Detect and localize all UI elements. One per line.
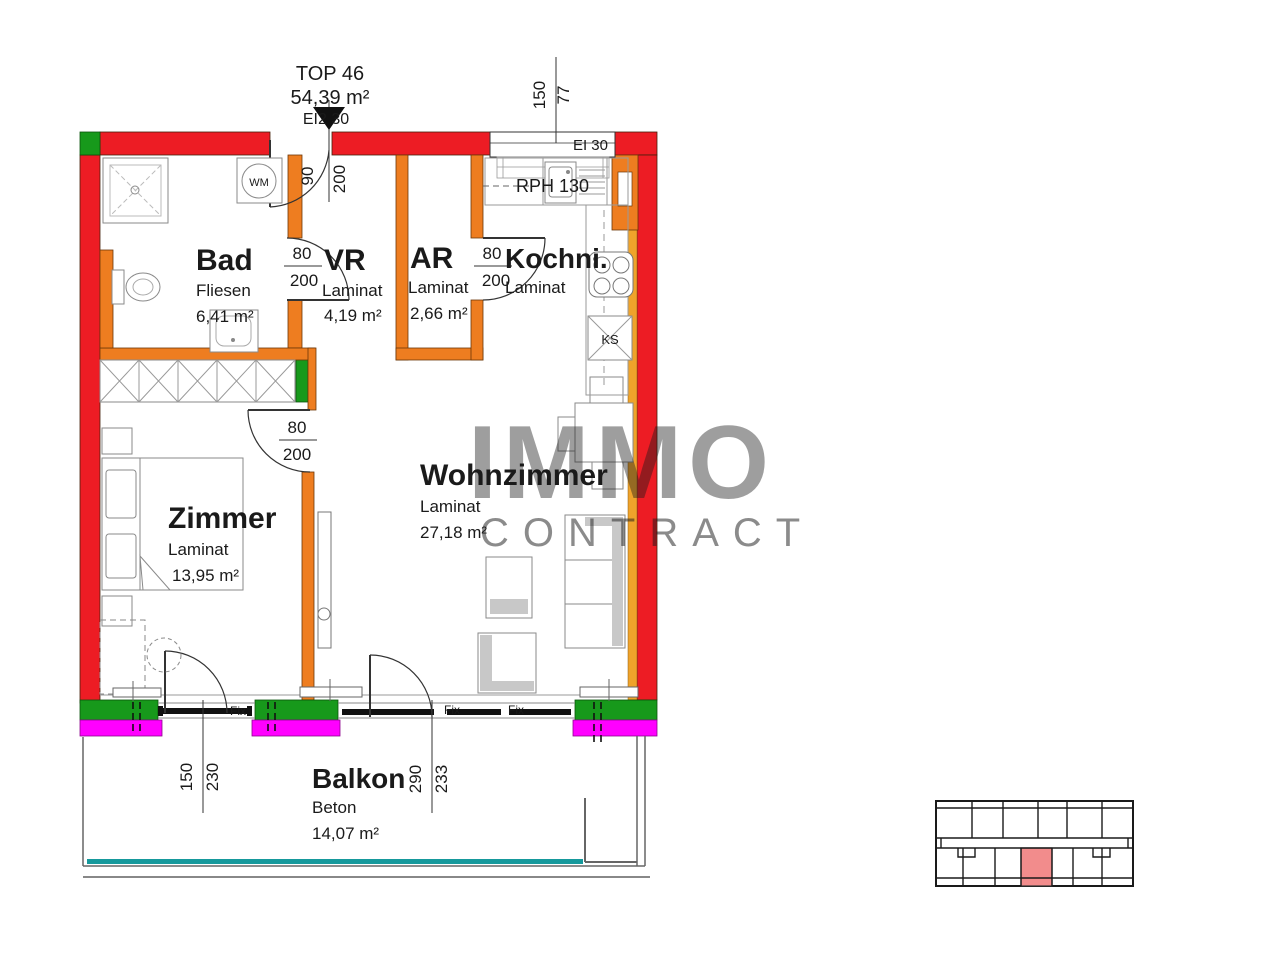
facade-pier-1 [80,700,158,720]
zimmer-door-width: 80 [288,418,307,437]
title-block: TOP 46 54,39 m² EI2 30 [291,63,370,128]
room-name: Bad [196,244,253,277]
room-floor: Laminat [408,278,469,297]
watermark-line1: IMMO [468,405,775,521]
wall-top-1 [100,132,270,155]
room-label-balkon: Balkon Beton 14,07 m² [312,763,405,843]
washing-machine-label: WM [249,177,269,189]
wardrobe-icon [100,360,295,402]
fix-label-1: Fix [230,704,246,718]
room-label-zimmer: Zimmer Laminat 13,95 m² [168,502,277,585]
kitchen-note-label: RPH 130 [516,176,589,196]
room-name: Zimmer [168,502,277,535]
minimap-highlight [1021,848,1052,886]
watermark-line2: CONTRACT [480,511,814,555]
wohnzimmer-window-width: 290 [406,765,425,793]
kitchen-corner-niche [618,172,632,206]
corner-green-block [80,132,100,155]
wall-toilet-niche [100,250,113,348]
south-facade: Fix Fix Fix [80,695,657,744]
room-area: 14,07 m² [312,824,379,843]
room-floor: Beton [312,798,356,817]
room-area: 13,95 m² [172,566,239,585]
room-floor: Fliesen [196,281,251,300]
bad-door-width: 80 [293,244,312,263]
floorplan-drawing: EI 30 [0,0,1280,970]
bad-door-height: 200 [290,271,318,290]
kitchen-window-parapet: 77 [554,86,573,105]
wall-ar-right-lower [471,300,483,360]
wall-left [80,155,100,703]
entry-door-height: 200 [330,165,349,193]
minimap [936,801,1133,886]
jamb-green-block [296,358,308,402]
unit-area: 54,39 m² [291,87,370,109]
room-label-bad: Bad Fliesen 6,41 m² [196,244,254,326]
room-area: 4,19 m² [324,306,382,325]
room-floor: Laminat [168,540,229,559]
facade-pier-3 [575,700,657,720]
wall-ar-bottom [396,348,483,360]
floorplan-page: EI 30 [0,0,1280,970]
room-name: Balkon [312,763,405,794]
facade-insulation-2 [252,720,340,736]
facade-insulation-3 [573,720,657,736]
wall-zimmer-wohnzimmer [302,472,314,700]
shower-icon [103,158,168,223]
fix-label-3: Fix [508,703,524,717]
zimmer-wardrobe-dashed [100,620,181,694]
radiators [113,679,638,701]
wall-top-2 [332,132,490,155]
room-area: 6,41 m² [196,307,254,326]
room-area: 27,18 m² [420,523,487,542]
door-balcony-wohnzimmer [370,655,432,717]
kitchen-window-rating-label: EI 30 [573,137,608,154]
wall-jamb-strip [308,348,316,410]
unit-number: TOP 46 [296,63,364,85]
room-label-vr: VR Laminat 4,19 m² [322,244,383,325]
entry-door-rating: EI2 30 [303,111,349,128]
room-label-ar: AR Laminat 2,66 m² [408,242,469,323]
room-name: VR [324,244,366,277]
zimmer-door-height: 200 [283,445,311,464]
room-area: 2,66 m² [410,304,468,323]
watermark: IMMO CONTRACT [468,405,814,555]
balcony-outline [83,736,650,877]
balcony-edge-teal [87,859,583,864]
room-name: AR [410,242,454,275]
zimmer-window-parapet: 230 [203,763,222,791]
ar-door-width: 80 [483,244,502,263]
coffee-table-icon [486,557,532,618]
room-name: Kochni. [505,243,608,274]
facade-insulation-1 [80,720,162,736]
wall-top-3 [615,132,657,155]
wohnzimmer-window-parapet: 233 [432,765,451,793]
zimmer-window-width: 150 [177,763,196,791]
window-wohnzimmer-sash [342,709,434,715]
fridge-label: KS [601,332,619,347]
entry-door-width: 90 [298,167,317,186]
room-floor: Laminat [505,278,566,297]
wall-bad-bottom [100,348,315,360]
door-balcony-zimmer [165,651,227,713]
wall-ar-right-upper [471,155,483,238]
wall-ar-left [396,155,408,360]
wall-bad-right-lower [288,300,302,348]
wall-heater-icon [318,512,331,648]
room-floor: Laminat [322,281,383,300]
kitchen-window-width: 150 [530,81,549,109]
toilet-icon [112,270,160,304]
fix-label-2: Fix [444,703,460,717]
armchair-icon [478,633,536,693]
